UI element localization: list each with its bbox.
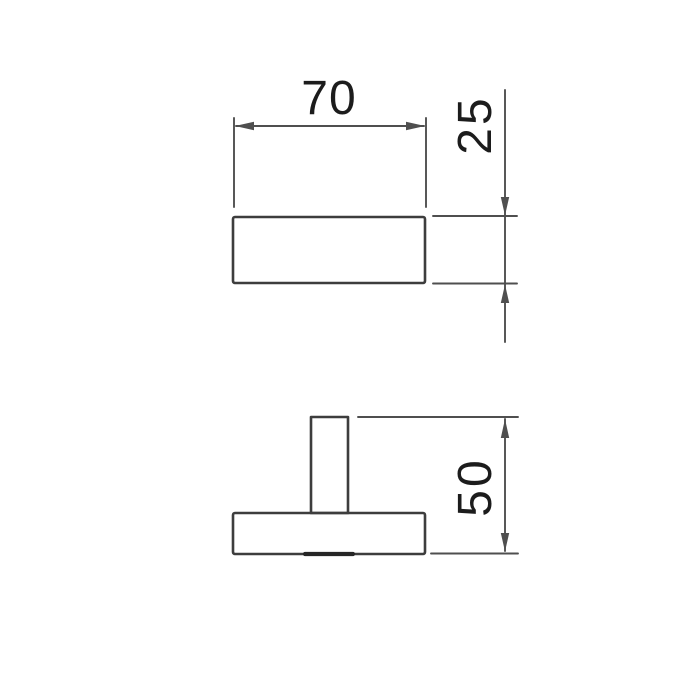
dim50-label: 50 <box>449 457 502 516</box>
dim70-label: 70 <box>301 72 356 125</box>
dim50-arrow-down <box>501 533 509 552</box>
dim70-arrow-right <box>406 122 425 130</box>
dim50-arrow-up <box>501 419 509 438</box>
drawing-canvas: 70 25 50 <box>0 0 700 700</box>
dim25-label: 25 <box>449 95 502 154</box>
dim25-arrow-up <box>501 285 509 304</box>
object-outlines <box>233 217 425 554</box>
dim70-arrow-left <box>235 122 254 130</box>
dimension-labels: 70 25 50 <box>301 72 502 517</box>
side-view-base <box>233 513 425 554</box>
side-view-stem <box>311 417 348 513</box>
front-view-body <box>233 217 425 283</box>
technical-drawing: 70 25 50 <box>0 0 700 700</box>
dim25-arrow-down <box>501 197 509 216</box>
